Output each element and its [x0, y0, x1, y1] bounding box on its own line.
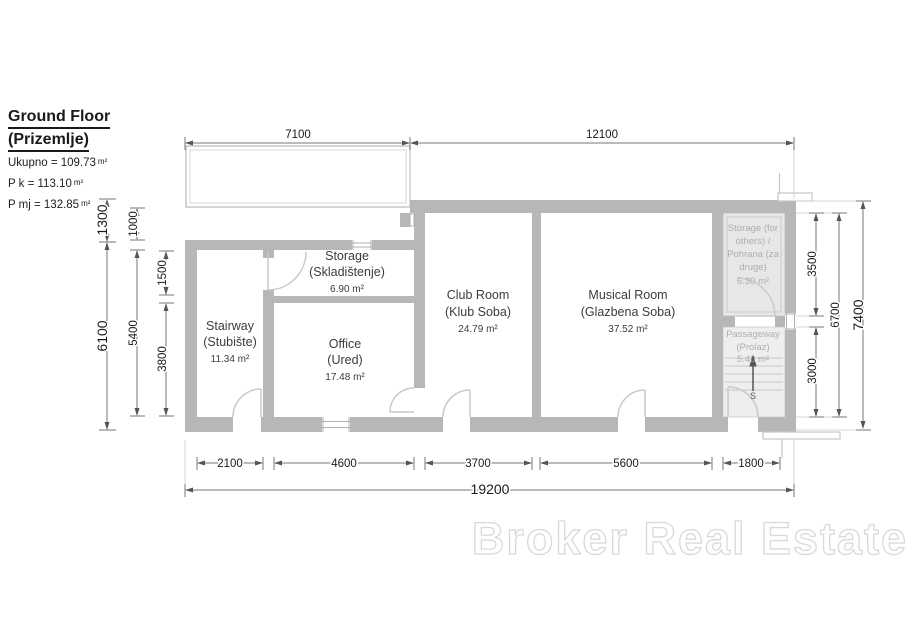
room-office-area: 17.48 m² — [325, 372, 365, 383]
dim-bottom-4600: 4600 — [331, 458, 357, 470]
dim-total-19200: 19200 — [471, 481, 510, 497]
floor-plan-page: Ground Floor (Prizemlje) Ukupno = 109.73… — [0, 0, 920, 613]
stat-pmj: P mj = 132.85m² — [8, 196, 198, 215]
dim-right-3500: 3500 — [807, 251, 819, 277]
room-stairway-area: 11.34 m² — [211, 354, 250, 365]
floor-plan-drawing: S Stairway (Stubište) 11.34 m² Storage (… — [0, 0, 920, 613]
dim-right-6700: 6700 — [830, 302, 842, 328]
room-storage-others-area: 6.30 m² — [737, 276, 769, 287]
stat-ukupno: Ukupno = 109.73m² — [8, 154, 198, 173]
stairs-label: S — [750, 391, 756, 401]
room-storage-name: Storage — [325, 249, 369, 263]
dim-bottom-1800: 1800 — [738, 458, 764, 470]
dim-right-7400: 7400 — [850, 299, 866, 330]
dim-left-3800: 3800 — [157, 346, 169, 372]
dim-top-12100: 12100 — [586, 129, 618, 141]
dim-left-5400: 5400 — [128, 320, 140, 346]
room-stairway-name: Stairway — [206, 319, 255, 333]
room-storage-others-line1: Storage (for — [728, 223, 778, 234]
room-stairway-native: (Stubište) — [203, 335, 257, 349]
terrace-outline — [186, 146, 410, 207]
room-musical-name: Musical Room — [588, 288, 667, 302]
dim-bottom-3700: 3700 — [465, 458, 491, 470]
room-storage-others-line4: druge) — [739, 262, 766, 273]
room-club-area: 24.79 m² — [458, 324, 498, 335]
watermark: Broker Real Estate — [472, 513, 908, 564]
title-block: Ground Floor (Prizemlje) Ukupno = 109.73… — [8, 106, 198, 215]
room-passageway-native: (Prolaz) — [736, 342, 769, 353]
dim-bottom-5600: 5600 — [613, 458, 639, 470]
dim-bottom-2100: 2100 — [217, 458, 243, 470]
room-office-native: (Ured) — [327, 353, 362, 367]
room-storage-native: (Skladištenje) — [309, 265, 385, 279]
room-musical-area: 37.52 m² — [608, 324, 648, 335]
room-club-native: (Klub Soba) — [445, 305, 511, 319]
room-musical-native: (Glazbena Soba) — [581, 305, 676, 319]
dim-left-1000: 1000 — [128, 211, 140, 237]
room-club-name: Club Room — [447, 288, 510, 302]
room-office-name: Office — [329, 337, 361, 351]
dim-left-6100: 6100 — [94, 320, 110, 351]
room-storage-area: 6.90 m² — [330, 284, 365, 295]
dim-top-7100: 7100 — [285, 129, 311, 141]
page-subtitle: (Prizemlje) — [8, 129, 198, 152]
dim-right-3000: 3000 — [807, 358, 819, 384]
stat-pk: P k = 113.10m² — [8, 175, 198, 194]
room-storage-others-line3: Pohrana (za — [727, 249, 779, 260]
room-passageway — [723, 327, 785, 417]
dim-left-1500: 1500 — [157, 260, 169, 286]
room-passageway-area: 5.40 m² — [737, 354, 769, 365]
room-storage-others-line2: others) / — [736, 236, 771, 247]
room-passageway-name: Passageway — [726, 329, 780, 340]
page-title: Ground Floor — [8, 106, 198, 129]
